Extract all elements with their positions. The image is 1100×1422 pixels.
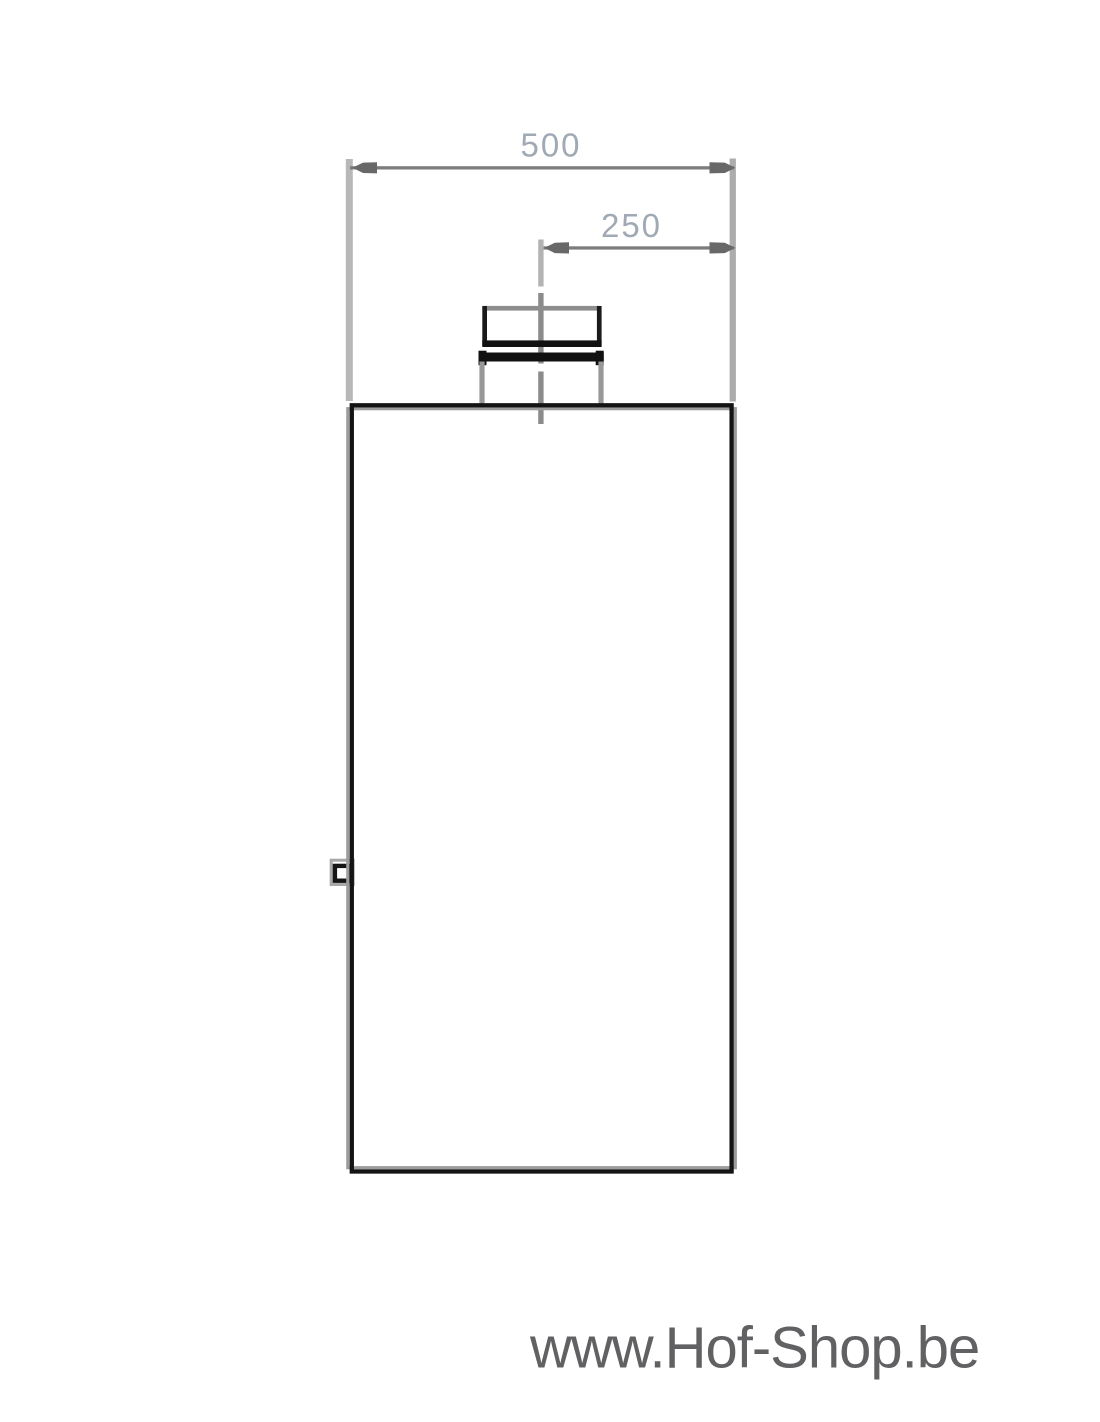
svg-text:250: 250 — [601, 207, 662, 244]
svg-text:500: 500 — [520, 127, 581, 164]
svg-text:www.Hof-Shop.be: www.Hof-Shop.be — [529, 1316, 979, 1381]
